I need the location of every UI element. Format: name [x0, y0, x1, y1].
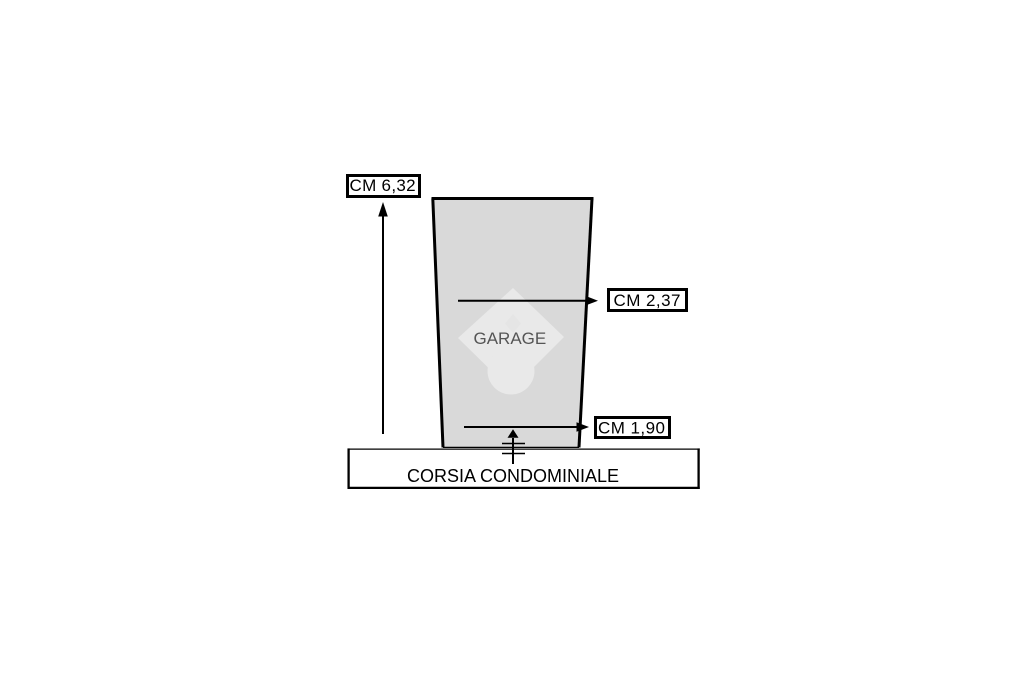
svg-text:CM 2,37: CM 2,37	[614, 291, 681, 310]
svg-text:CM 1,90: CM 1,90	[598, 419, 665, 438]
svg-text:CM 6,32: CM 6,32	[350, 176, 416, 195]
svg-text:GARAGE: GARAGE	[474, 329, 547, 348]
svg-text:CORSIA CONDOMINIALE: CORSIA CONDOMINIALE	[407, 466, 619, 486]
